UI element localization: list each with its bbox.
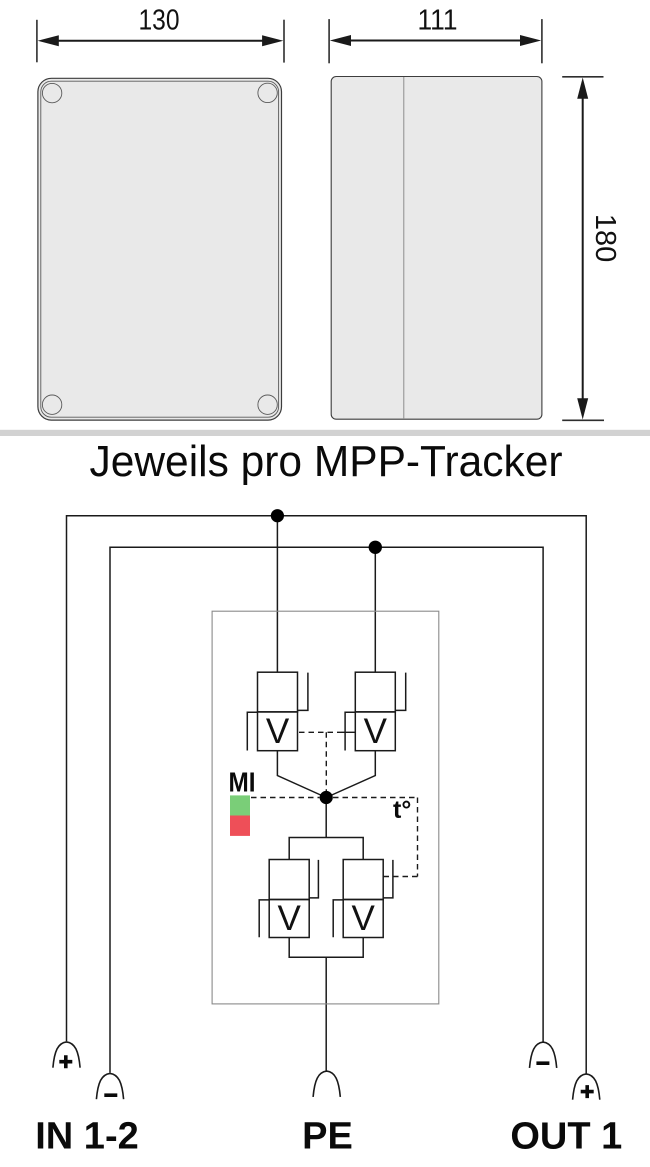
svg-text:PE: PE bbox=[302, 1116, 353, 1158]
svg-text:V: V bbox=[364, 712, 388, 751]
svg-text:180: 180 bbox=[589, 214, 621, 262]
svg-text:V: V bbox=[352, 899, 376, 938]
svg-text:130: 130 bbox=[139, 5, 180, 37]
svg-text:IN 1-2: IN 1-2 bbox=[35, 1116, 138, 1158]
svg-text:t°: t° bbox=[393, 796, 411, 824]
svg-text:V: V bbox=[266, 712, 290, 751]
svg-text:V: V bbox=[278, 899, 302, 938]
svg-text:111: 111 bbox=[418, 5, 458, 37]
svg-text:OUT 1: OUT 1 bbox=[510, 1116, 622, 1158]
svg-text:MI: MI bbox=[229, 766, 256, 797]
svg-text:Jeweils pro MPP-Tracker: Jeweils pro MPP-Tracker bbox=[90, 437, 563, 486]
